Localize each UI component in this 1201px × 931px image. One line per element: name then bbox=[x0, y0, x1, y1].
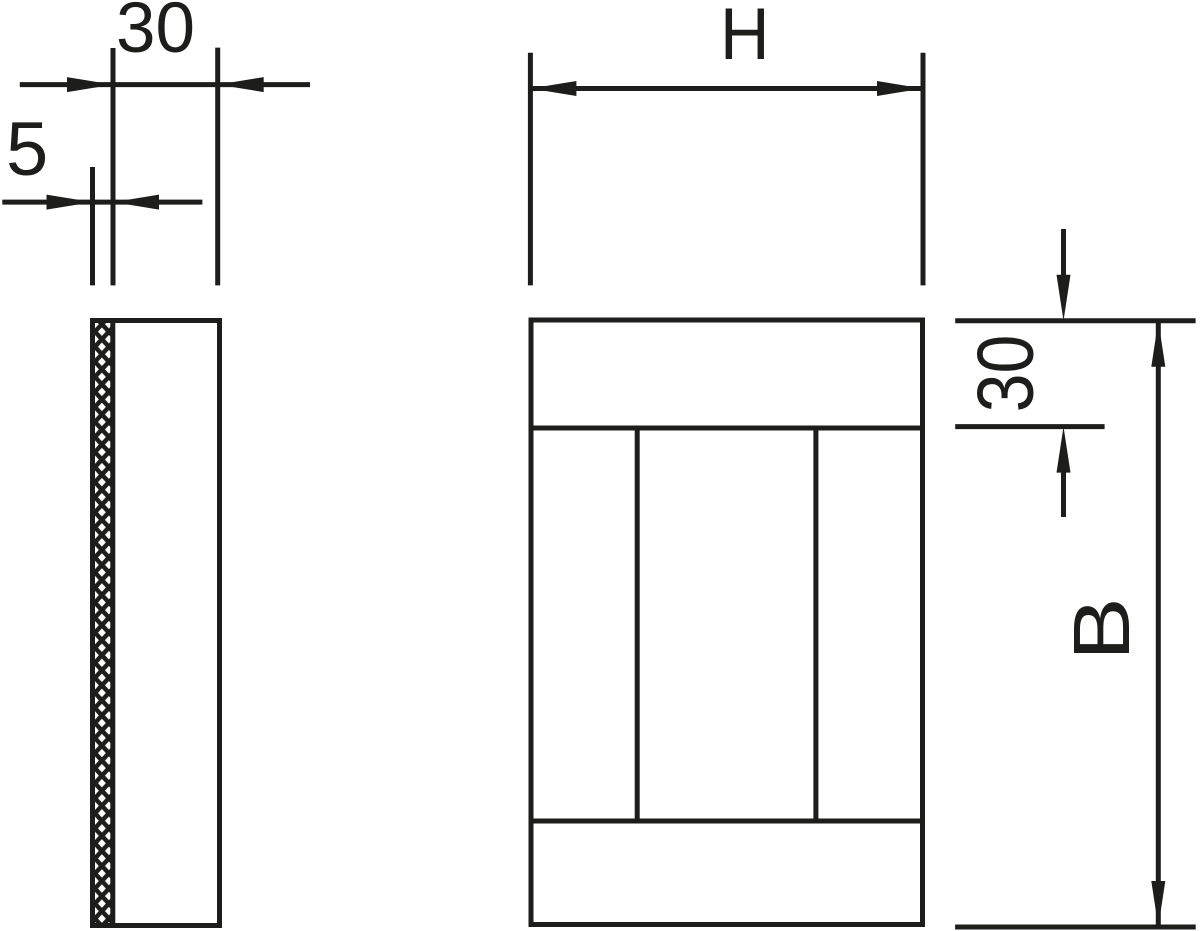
svg-text:5: 5 bbox=[6, 107, 48, 192]
svg-text:H: H bbox=[720, 0, 770, 75]
svg-text:30: 30 bbox=[116, 0, 195, 68]
svg-text:B: B bbox=[1056, 597, 1146, 660]
svg-text:30: 30 bbox=[960, 335, 1049, 413]
